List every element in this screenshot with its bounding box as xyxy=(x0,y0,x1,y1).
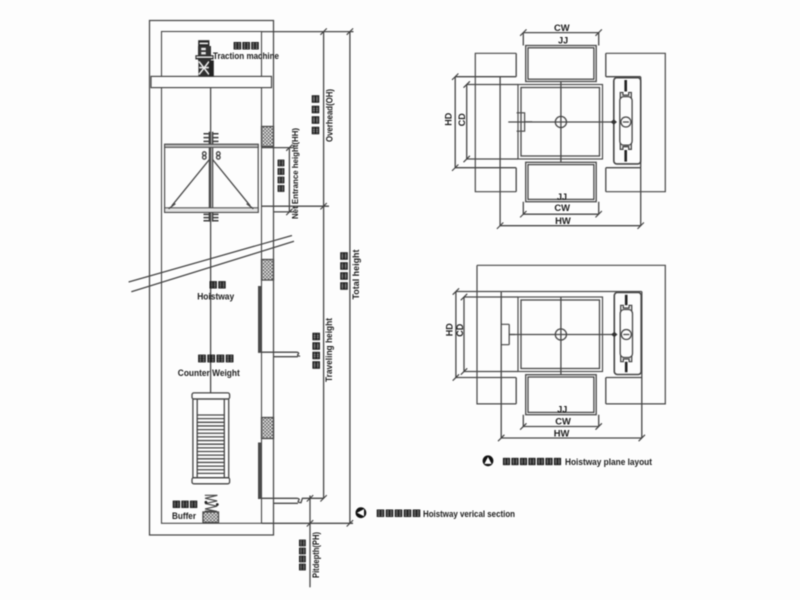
svg-text:Hoistway plane layout: Hoistway plane layout xyxy=(565,457,652,467)
svg-text:HW: HW xyxy=(554,428,570,439)
svg-text:Hoistway verical section: Hoistway verical section xyxy=(423,509,515,519)
svg-text:Total height: Total height xyxy=(351,249,361,299)
svg-text:HD: HD xyxy=(444,112,454,125)
svg-text:Pitdepth(PH): Pitdepth(PH) xyxy=(311,532,321,578)
svg-text:Overhead(OH): Overhead(OH) xyxy=(325,89,335,142)
svg-text:JJ: JJ xyxy=(558,36,568,46)
svg-text:HD: HD xyxy=(445,323,455,336)
svg-text:CD: CD xyxy=(457,113,467,126)
svg-text:HW: HW xyxy=(555,215,571,226)
svg-text:JJ: JJ xyxy=(557,404,567,414)
svg-text:JJ: JJ xyxy=(557,192,567,202)
svg-text:CD: CD xyxy=(455,323,465,336)
svg-text:Counter Weight: Counter Weight xyxy=(178,368,241,379)
svg-text:Buffer: Buffer xyxy=(172,511,196,522)
svg-text:CW: CW xyxy=(554,22,570,33)
svg-text:Traction machine: Traction machine xyxy=(213,51,279,62)
svg-text:Net Entrance height(HH): Net Entrance height(HH) xyxy=(290,128,300,219)
svg-text:Hoistway: Hoistway xyxy=(197,292,235,303)
svg-text:CW: CW xyxy=(554,202,570,213)
svg-text:Traveling height: Traveling height xyxy=(324,318,334,382)
svg-text:CW: CW xyxy=(555,415,571,426)
